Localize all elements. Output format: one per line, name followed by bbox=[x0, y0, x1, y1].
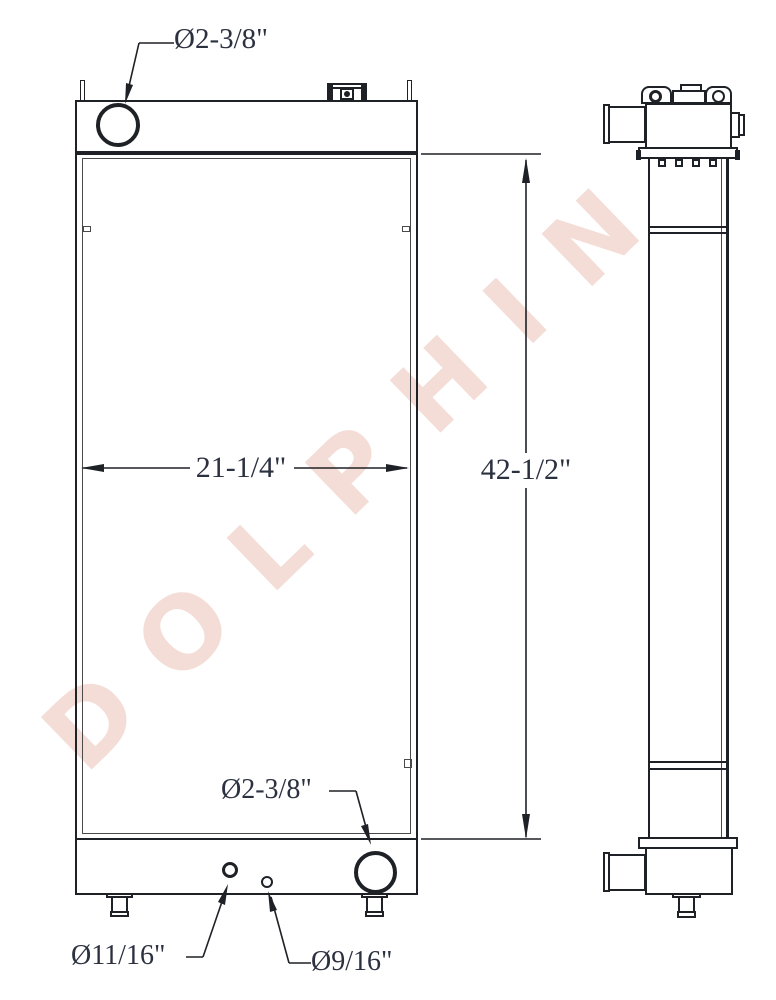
front-side-tab-left bbox=[83, 226, 91, 232]
side-flange-tab-1 bbox=[658, 159, 666, 167]
front-foot-right-cap bbox=[365, 911, 384, 917]
side-outlet-pipe bbox=[608, 854, 646, 891]
label-top-port-diameter: Ø2-3/8" bbox=[174, 24, 268, 56]
side-mount-lug-left-hole bbox=[649, 90, 662, 103]
side-support-band-bottom bbox=[648, 761, 729, 770]
side-filler-neck bbox=[672, 90, 706, 104]
side-bottom-tank bbox=[645, 847, 733, 895]
side-top-flange-clip-right bbox=[735, 150, 740, 160]
leader-top-port bbox=[125, 43, 174, 104]
side-filler-neck-cap bbox=[680, 84, 702, 92]
side-top-flange-clip-left bbox=[636, 150, 641, 160]
side-mount-lug-right-hole bbox=[712, 90, 725, 103]
front-top-bracket-post-right bbox=[361, 83, 367, 100]
front-drain-hole-left bbox=[222, 862, 238, 878]
side-small-pipe-cap bbox=[738, 114, 745, 136]
front-filler-port-circle bbox=[96, 103, 140, 147]
leader-right-hole bbox=[268, 891, 311, 963]
front-top-bracket-hole bbox=[344, 91, 350, 97]
side-core-right-inner-line bbox=[721, 159, 722, 838]
front-top-pin-right bbox=[407, 80, 412, 102]
label-left-hole-diameter: Ø11/16" bbox=[71, 941, 165, 972]
label-core-width: 21-1/4" bbox=[186, 451, 296, 484]
front-drain-hole-right bbox=[261, 876, 273, 888]
side-top-tank bbox=[645, 103, 732, 149]
side-flange-tab-3 bbox=[692, 159, 700, 167]
front-bottom-port-circle bbox=[354, 851, 397, 894]
label-right-hole-diameter: Ø9/16" bbox=[311, 947, 392, 978]
front-side-notch-right bbox=[404, 759, 412, 768]
side-foot-cap bbox=[677, 911, 696, 918]
side-top-flange bbox=[638, 147, 738, 159]
front-side-tab-right bbox=[402, 226, 410, 232]
side-inlet-pipe bbox=[608, 106, 646, 143]
side-core-left-edge bbox=[648, 159, 650, 838]
side-flange-tab-4 bbox=[709, 159, 717, 167]
label-overall-height: 42-1/2" bbox=[466, 453, 586, 486]
front-core-inner bbox=[82, 158, 411, 834]
front-top-pin-left bbox=[80, 80, 85, 102]
side-core-right-edge bbox=[726, 159, 729, 838]
front-top-bracket-post-left bbox=[327, 83, 333, 100]
side-flange-tab-2 bbox=[675, 159, 683, 167]
side-support-band-top bbox=[648, 226, 729, 234]
label-bottom-port-diameter: Ø2-3/8" bbox=[221, 775, 312, 806]
front-foot-left-cap bbox=[110, 911, 129, 917]
radiator-technical-drawing: DOLPHIN bbox=[0, 0, 776, 1000]
